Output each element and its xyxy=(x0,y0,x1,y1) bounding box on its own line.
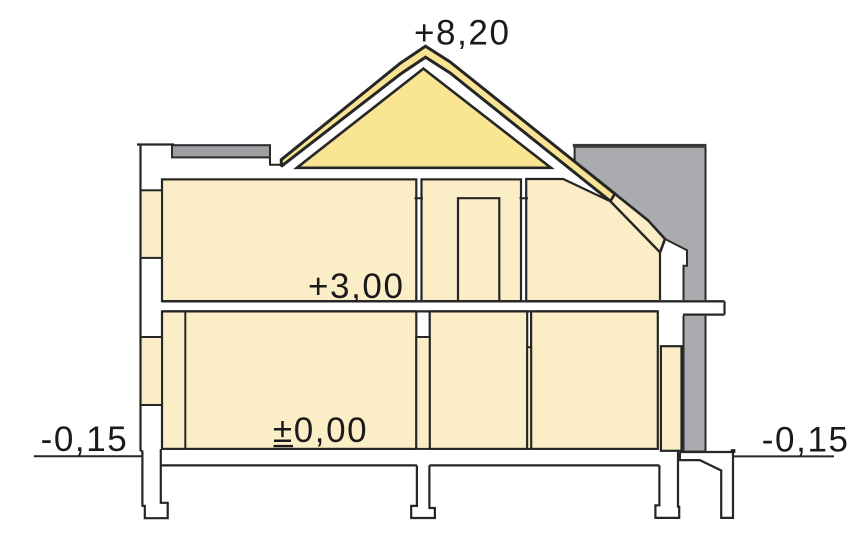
svg-text:±0,00: ±0,00 xyxy=(273,411,368,450)
svg-text:+3,00: +3,00 xyxy=(308,267,405,306)
svg-text:-0,15: -0,15 xyxy=(762,421,850,460)
svg-text:+8,20: +8,20 xyxy=(414,13,511,52)
svg-text:-0,15: -0,15 xyxy=(41,420,129,459)
